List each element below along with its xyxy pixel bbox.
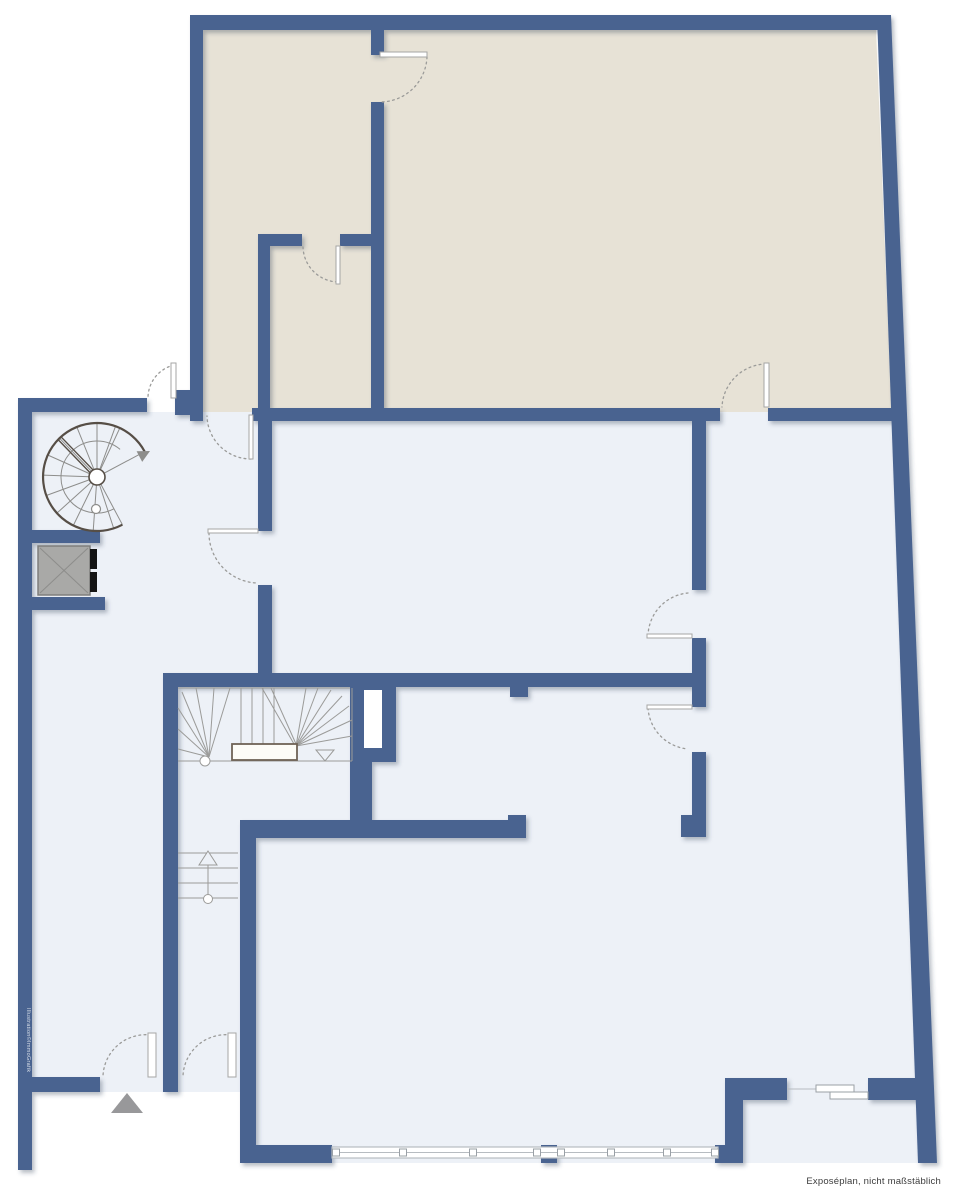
wall-elevator-top (18, 530, 100, 543)
stair-end-marker (204, 895, 213, 904)
door-panel (380, 52, 427, 57)
door-panel (764, 363, 769, 407)
wall-stair-bottom (240, 820, 526, 838)
wall-stub-mid (510, 687, 528, 697)
wall-annex-top (18, 398, 147, 412)
wall-midroom-bottom (163, 673, 692, 687)
wall-upper-left (190, 15, 203, 421)
window-mullion (664, 1149, 671, 1156)
wall-corner-vert (725, 1100, 743, 1163)
wall-bottom-a (240, 1145, 332, 1163)
stair-landing (232, 744, 297, 760)
wall-upper-inner-a (258, 234, 302, 246)
window-front (332, 1147, 719, 1158)
door-panel (228, 1033, 236, 1077)
window-mullion (400, 1149, 407, 1156)
wall-opening-slot (364, 690, 382, 748)
wall-bottom-left (18, 1077, 100, 1092)
door-panel (171, 363, 176, 398)
wall-corridor-right (240, 822, 256, 1160)
wall-upper-divider-a (371, 30, 384, 55)
entrance-marker (111, 1093, 143, 1113)
stair-start-marker (200, 756, 210, 766)
upper-room-floor (203, 30, 892, 421)
door-panel (647, 634, 692, 638)
wall-upper-inner-c (258, 246, 270, 408)
wall-midroom-left-a (258, 415, 272, 531)
watermark-text: Illustration©ImmoGrafik (25, 1008, 32, 1072)
window-mullion (534, 1149, 541, 1156)
spiral-newel (89, 469, 105, 485)
wall-top (190, 15, 884, 30)
wall-midroom-right-a (692, 415, 706, 590)
door-panel (208, 529, 258, 533)
wall-foot (681, 815, 706, 837)
wall-midroom-left-b (258, 585, 272, 681)
wall-upper-bottom-a (252, 408, 720, 421)
window-mullion (712, 1149, 719, 1156)
door-swing (148, 365, 174, 397)
door-panel (249, 415, 253, 459)
window-mullion (558, 1149, 565, 1156)
elevator (38, 546, 97, 595)
wall-stair-left (163, 673, 178, 1092)
wall-upper-divider-b (371, 102, 384, 408)
wall-elevator-bottom (18, 597, 105, 610)
wall-bottomright-b (868, 1078, 923, 1100)
wall-upper-inner-b (340, 234, 371, 246)
wall-jamb (175, 390, 191, 415)
door-panel (336, 246, 340, 284)
spiral-end-marker (92, 505, 101, 514)
floor-plan-drawing: Exposéplan, nicht maßstäblich Illustrati… (0, 0, 958, 1200)
floor-plan-page: Exposéplan, nicht maßstäblich Illustrati… (0, 0, 958, 1200)
wall-midroom-right-b (692, 638, 706, 707)
window-mullion (608, 1149, 615, 1156)
window-mullion (333, 1149, 340, 1156)
elevator-door (90, 572, 97, 592)
elevator-door (90, 549, 97, 569)
wall-nub (508, 815, 526, 838)
door-panel (148, 1033, 156, 1077)
disclaimer-text: Exposéplan, nicht maßstäblich (806, 1176, 941, 1187)
wall-upper-bottom-b (768, 408, 892, 421)
door-panel (647, 705, 692, 709)
wall-bottomright-a (725, 1078, 787, 1100)
window-mullion (470, 1149, 477, 1156)
